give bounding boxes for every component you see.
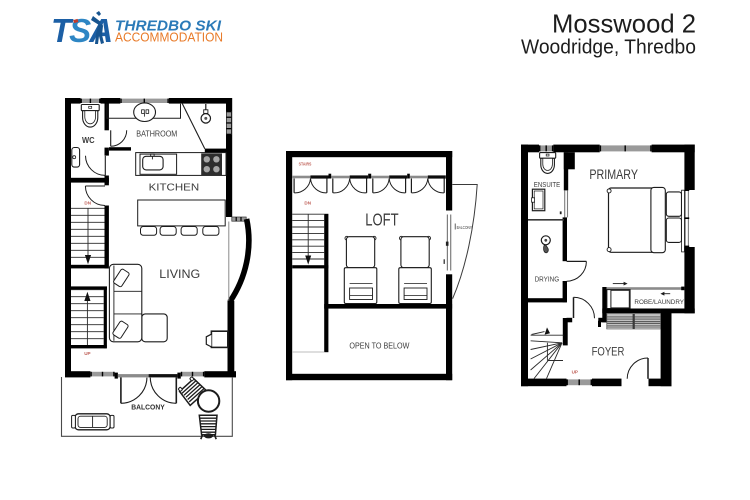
- svg-text:UP: UP: [84, 351, 90, 356]
- svg-text:BATHROOM: BATHROOM: [136, 128, 177, 138]
- svg-text:LIVING: LIVING: [159, 267, 200, 281]
- svg-text:OPEN TO BELOW: OPEN TO BELOW: [349, 340, 410, 350]
- svg-text:PRIMARY: PRIMARY: [589, 166, 638, 182]
- svg-text:ACCOMMODATION: ACCOMMODATION: [115, 30, 223, 45]
- svg-text:Mosswood 2: Mosswood 2: [552, 9, 696, 39]
- svg-text:DN: DN: [84, 200, 91, 205]
- svg-text:ROBE/LAUNDRY: ROBE/LAUNDRY: [634, 299, 684, 306]
- svg-text:STAIRS: STAIRS: [299, 161, 312, 166]
- svg-text:LOFT: LOFT: [365, 210, 399, 230]
- svg-text:DRYING: DRYING: [535, 274, 560, 283]
- svg-text:FOYER: FOYER: [592, 345, 625, 359]
- svg-text:BALCONY: BALCONY: [457, 225, 472, 230]
- svg-text:Woodridge, Thredbo: Woodridge, Thredbo: [521, 37, 696, 59]
- svg-text:WC: WC: [82, 136, 95, 145]
- svg-text:ENSUITE: ENSUITE: [534, 180, 560, 189]
- svg-text:KITCHEN: KITCHEN: [149, 182, 200, 193]
- svg-text:UP: UP: [572, 370, 578, 375]
- svg-text:DN: DN: [304, 200, 311, 205]
- svg-text:BALCONY: BALCONY: [131, 402, 164, 411]
